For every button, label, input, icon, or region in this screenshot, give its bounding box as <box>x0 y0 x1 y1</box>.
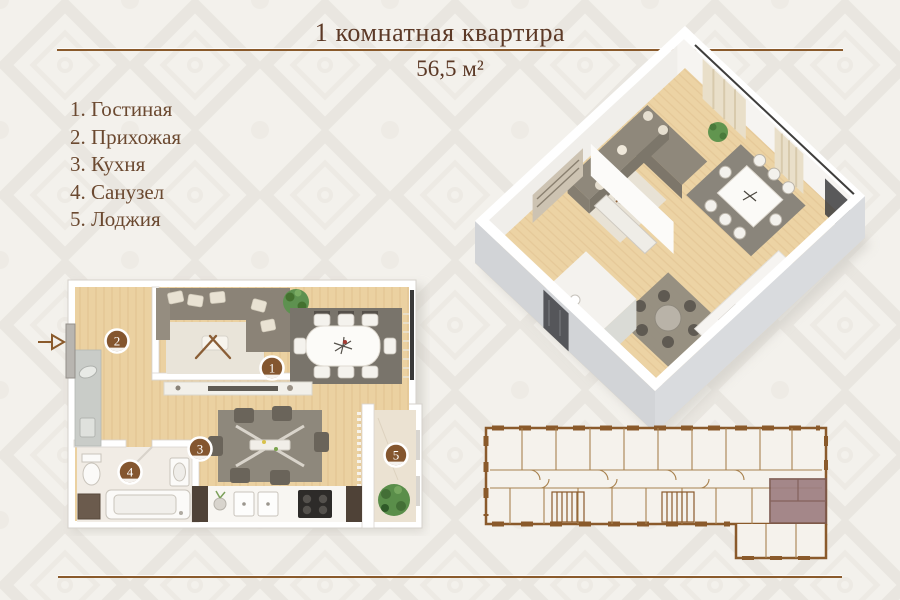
console-shelf <box>164 382 312 395</box>
entrance-arrow-icon <box>38 335 64 349</box>
room-legend: 1. Гостиная 2. Прихожая 3. Кухня 4. Сану… <box>70 96 181 234</box>
legend-item-kitchen: 3. Кухня <box>70 151 181 179</box>
kitchen-table <box>250 440 290 450</box>
room-badge-3: 3 <box>189 438 212 461</box>
legend-item-loggia: 5. Лоджия <box>70 206 181 234</box>
loggia-window-2 <box>416 476 420 506</box>
room-badge-4: 4 <box>119 461 142 484</box>
toilet-tank <box>82 454 101 462</box>
toilet <box>83 463 100 485</box>
floor-schematic <box>478 418 888 600</box>
legend-item-hallway: 2. Прихожая <box>70 124 181 152</box>
svg-text:5: 5 <box>393 448 400 463</box>
loggia-plant <box>378 484 410 516</box>
loggia-window-1 <box>416 430 420 460</box>
room-badge-2: 2 <box>106 330 129 353</box>
bath-cabinet <box>78 494 100 519</box>
room-badge-5: 5 <box>385 444 408 467</box>
left-cabinets <box>75 350 101 446</box>
svg-text:4: 4 <box>127 465 134 480</box>
legend-item-bathroom: 4. Санузел <box>70 179 181 207</box>
selected-unit-highlight <box>770 479 826 523</box>
window-band <box>410 290 414 380</box>
legend-item-living: 1. Гостиная <box>70 96 181 124</box>
dining-area <box>290 308 409 384</box>
plan-3d <box>445 15 885 445</box>
svg-text:2: 2 <box>114 334 121 349</box>
svg-text:3: 3 <box>197 442 204 457</box>
plan-2d: 1 2 3 4 5 <box>34 274 430 536</box>
room-badge-1: 1 <box>261 357 284 380</box>
lower-wing <box>736 524 826 558</box>
cooktop <box>298 490 332 518</box>
kitchen-table-3d <box>655 305 681 331</box>
entry-door <box>66 324 75 378</box>
svg-text:1: 1 <box>269 361 276 376</box>
